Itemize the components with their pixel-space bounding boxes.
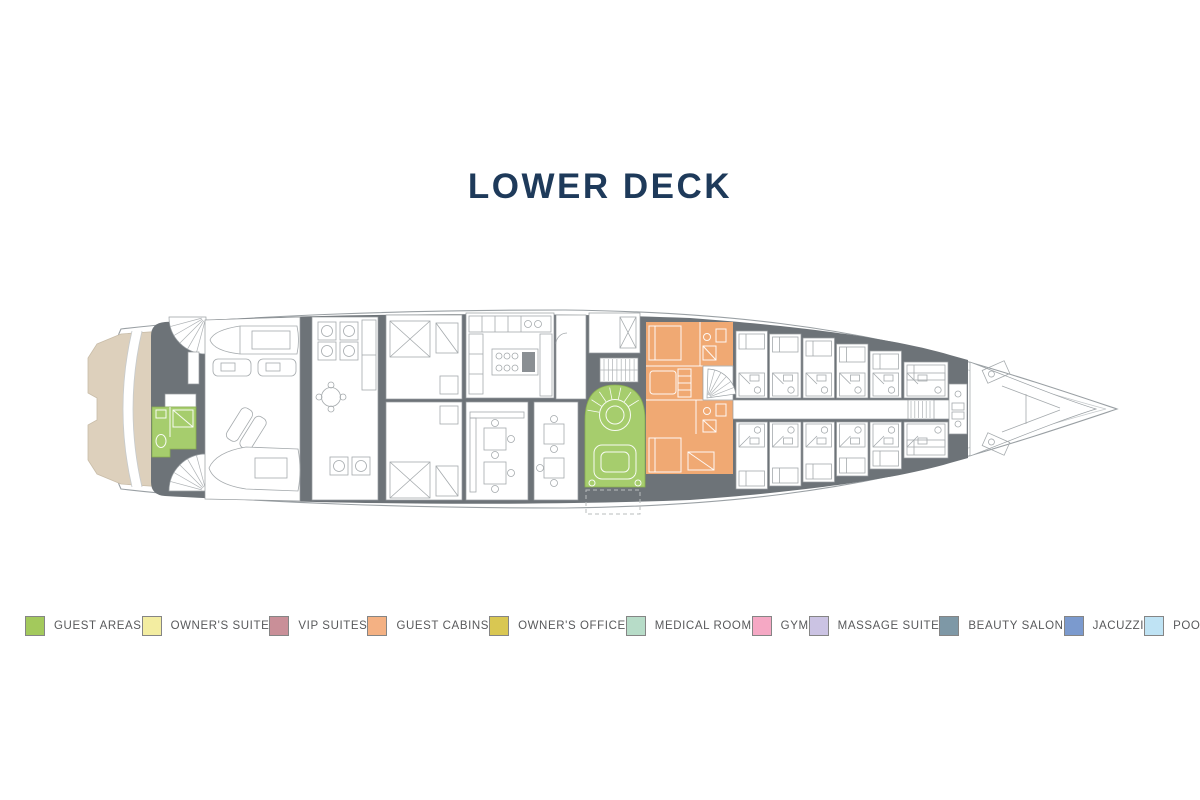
crew-cabin bbox=[904, 362, 948, 398]
crew-cabin bbox=[904, 422, 948, 458]
owner-s-suite-swatch bbox=[142, 616, 162, 636]
legend-item-owner-s-suite: OWNER'S SUITE bbox=[142, 616, 270, 636]
crew-cabin bbox=[837, 344, 869, 398]
owner-s-office-label: OWNER'S OFFICE bbox=[518, 620, 626, 632]
crew-cabin bbox=[837, 422, 869, 476]
pool-label: POOL bbox=[1173, 620, 1200, 632]
legend-item-massage-suite: MASSAGE SUITE bbox=[809, 616, 940, 636]
legend-item-vip-suites: VIP SUITES bbox=[269, 616, 367, 636]
jet-ski bbox=[213, 359, 251, 376]
gym-label: GYM bbox=[781, 620, 809, 632]
tender-boat bbox=[210, 326, 299, 354]
deck-plan bbox=[60, 295, 1140, 530]
owner-s-office-swatch bbox=[489, 616, 509, 636]
lobby-guest-area bbox=[585, 385, 645, 487]
crew-cabin bbox=[736, 422, 768, 489]
guest-areas-swatch bbox=[25, 616, 45, 636]
laundry-room bbox=[312, 317, 378, 500]
crew-cabin bbox=[870, 422, 902, 469]
beauty-salon-label: BEAUTY SALON bbox=[968, 620, 1063, 632]
legend-item-medical-room: MEDICAL ROOM bbox=[626, 616, 752, 636]
tender-garage bbox=[205, 317, 300, 501]
massage-suite-swatch bbox=[809, 616, 829, 636]
deck-plan-drawing bbox=[60, 295, 1140, 530]
legend-item-owner-s-office: OWNER'S OFFICE bbox=[489, 616, 626, 636]
legend-item-gym: GYM bbox=[752, 616, 809, 636]
crew-cabin bbox=[870, 351, 902, 398]
staff-cabins bbox=[386, 315, 462, 500]
vip-suites-label: VIP SUITES bbox=[298, 620, 367, 632]
cabinet bbox=[165, 394, 196, 407]
crew-cabin bbox=[770, 422, 802, 486]
massage-suite-label: MASSAGE SUITE bbox=[838, 620, 940, 632]
crew-mess bbox=[466, 402, 578, 500]
guest-cabins-label: GUEST CABINS bbox=[396, 620, 489, 632]
guest-cabins-swatch bbox=[367, 616, 387, 636]
page-title: LOWER DECK bbox=[0, 167, 1200, 207]
legend-item-pool: POOL bbox=[1144, 616, 1200, 636]
locker bbox=[188, 352, 199, 384]
legend-item-guest-areas: GUEST AREAS bbox=[25, 616, 142, 636]
forepeak bbox=[970, 361, 1096, 456]
jet-ski bbox=[258, 359, 296, 376]
vip-suites-swatch bbox=[269, 616, 289, 636]
owner-s-suite-label: OWNER'S SUITE bbox=[171, 620, 270, 632]
beauty-salon-swatch bbox=[939, 616, 959, 636]
galley bbox=[466, 313, 554, 398]
bow-bathrooms bbox=[949, 384, 967, 434]
guest-areas-label: GUEST AREAS bbox=[54, 620, 142, 632]
guest-cabins bbox=[646, 322, 736, 474]
medical-room-label: MEDICAL ROOM bbox=[655, 620, 752, 632]
legend-item-jacuzzi: JACUZZI bbox=[1064, 616, 1144, 636]
jacuzzi-swatch bbox=[1064, 616, 1084, 636]
crew-cabin bbox=[803, 338, 835, 398]
crew-cabin bbox=[770, 334, 802, 398]
jacuzzi-label: JACUZZI bbox=[1093, 620, 1144, 632]
legend-item-beauty-salon: BEAUTY SALON bbox=[939, 616, 1063, 636]
crew-cabin bbox=[803, 422, 835, 482]
crew-cabin bbox=[736, 331, 768, 398]
legend-item-guest-cabins: GUEST CABINS bbox=[367, 616, 489, 636]
gym-swatch bbox=[752, 616, 772, 636]
pool-swatch bbox=[1144, 616, 1164, 636]
medical-room-swatch bbox=[626, 616, 646, 636]
legend: GUEST AREASOWNER'S SUITEVIP SUITESGUEST … bbox=[0, 616, 1200, 636]
